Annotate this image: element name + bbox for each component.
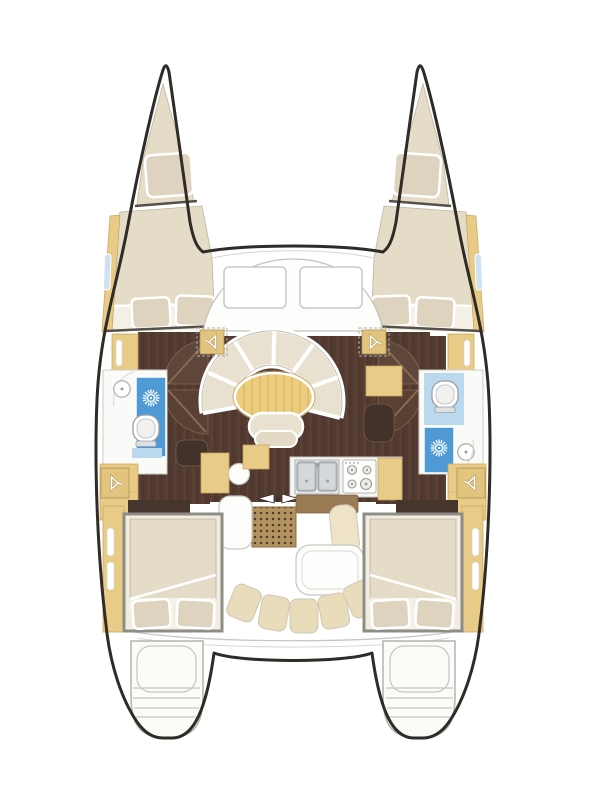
catamaran-floor-plan bbox=[0, 0, 600, 800]
coachroof-window bbox=[300, 267, 362, 308]
floor-plan-page bbox=[0, 0, 600, 800]
ottoman-base bbox=[255, 431, 297, 447]
stove bbox=[343, 460, 376, 493]
starboard-aft-cabin bbox=[364, 500, 483, 632]
starboard-sugar-scoop bbox=[383, 641, 455, 738]
port-head bbox=[103, 370, 167, 474]
door-latch bbox=[276, 497, 280, 501]
starboard-hanging-locker bbox=[359, 328, 389, 356]
port-sugar-scoop bbox=[131, 641, 203, 738]
galley-cabinet-fwd bbox=[366, 366, 402, 396]
starboard-head bbox=[419, 370, 483, 474]
coachroof-window bbox=[224, 267, 286, 308]
shower-drain-icon bbox=[143, 390, 160, 407]
hull-window-slit bbox=[464, 340, 470, 366]
saloon-cabinet bbox=[201, 453, 229, 493]
galley-cabinet-aft bbox=[378, 458, 402, 500]
companionway-mat bbox=[252, 507, 296, 547]
saloon-locker bbox=[243, 445, 269, 469]
faucet bbox=[315, 463, 319, 467]
port-hanging-locker bbox=[197, 328, 227, 356]
hull-window-slit bbox=[116, 340, 122, 366]
port-aft-cabin bbox=[103, 500, 222, 632]
shower-drain-icon bbox=[431, 440, 448, 457]
cockpit-seat-fwd bbox=[219, 496, 252, 549]
toilet-icon bbox=[432, 381, 458, 413]
toilet-icon bbox=[133, 415, 159, 447]
